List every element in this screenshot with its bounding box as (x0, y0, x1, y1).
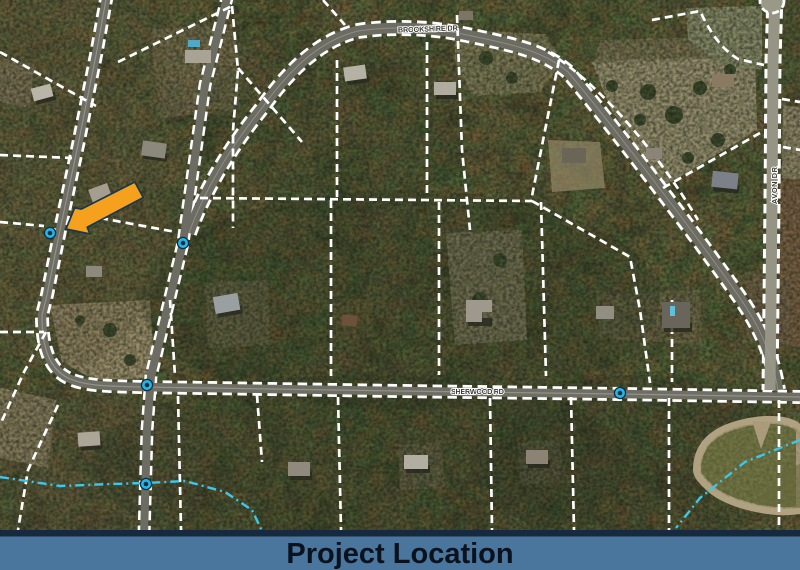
svg-text:AVON DR: AVON DR (770, 166, 779, 204)
svg-text:Project Location: Project Location (286, 538, 513, 570)
svg-text:SHERWOOD RD: SHERWOOD RD (451, 387, 505, 396)
